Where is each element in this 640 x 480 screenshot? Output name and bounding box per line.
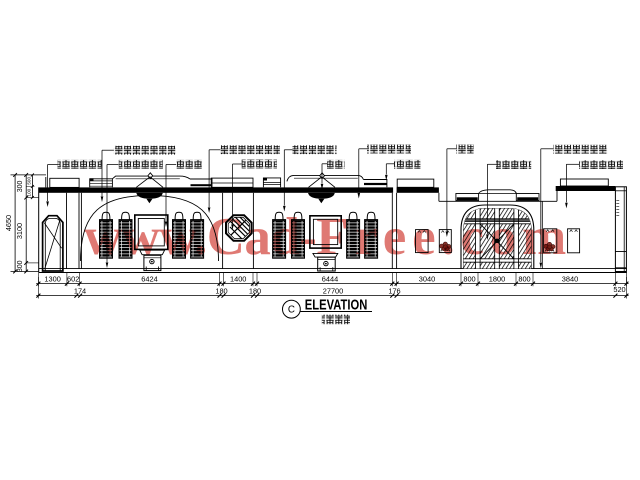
svg-text:300: 300 <box>17 260 24 272</box>
svg-text:174: 174 <box>74 287 86 296</box>
svg-text:3100: 3100 <box>15 223 24 239</box>
svg-text:800: 800 <box>463 274 475 283</box>
svg-text:27700: 27700 <box>323 287 344 296</box>
svg-text:800: 800 <box>518 274 530 283</box>
svg-text:6444: 6444 <box>322 274 338 283</box>
svg-text:C: C <box>288 305 295 316</box>
svg-text:3040: 3040 <box>419 274 435 283</box>
svg-text:1800: 1800 <box>489 274 505 283</box>
svg-text:4650: 4650 <box>4 215 13 231</box>
svg-text:1400: 1400 <box>230 274 246 283</box>
svg-text:6424: 6424 <box>141 274 157 283</box>
svg-text:180: 180 <box>215 287 227 296</box>
svg-text:100: 100 <box>27 188 32 196</box>
svg-text:180: 180 <box>249 287 261 296</box>
svg-text:1300: 1300 <box>44 274 60 283</box>
svg-text:500: 500 <box>27 177 32 185</box>
svg-text:520: 520 <box>613 285 625 294</box>
svg-text:300: 300 <box>17 180 24 192</box>
svg-text:602: 602 <box>67 274 79 283</box>
svg-text:3840: 3840 <box>562 274 578 283</box>
svg-text:176: 176 <box>388 287 400 296</box>
